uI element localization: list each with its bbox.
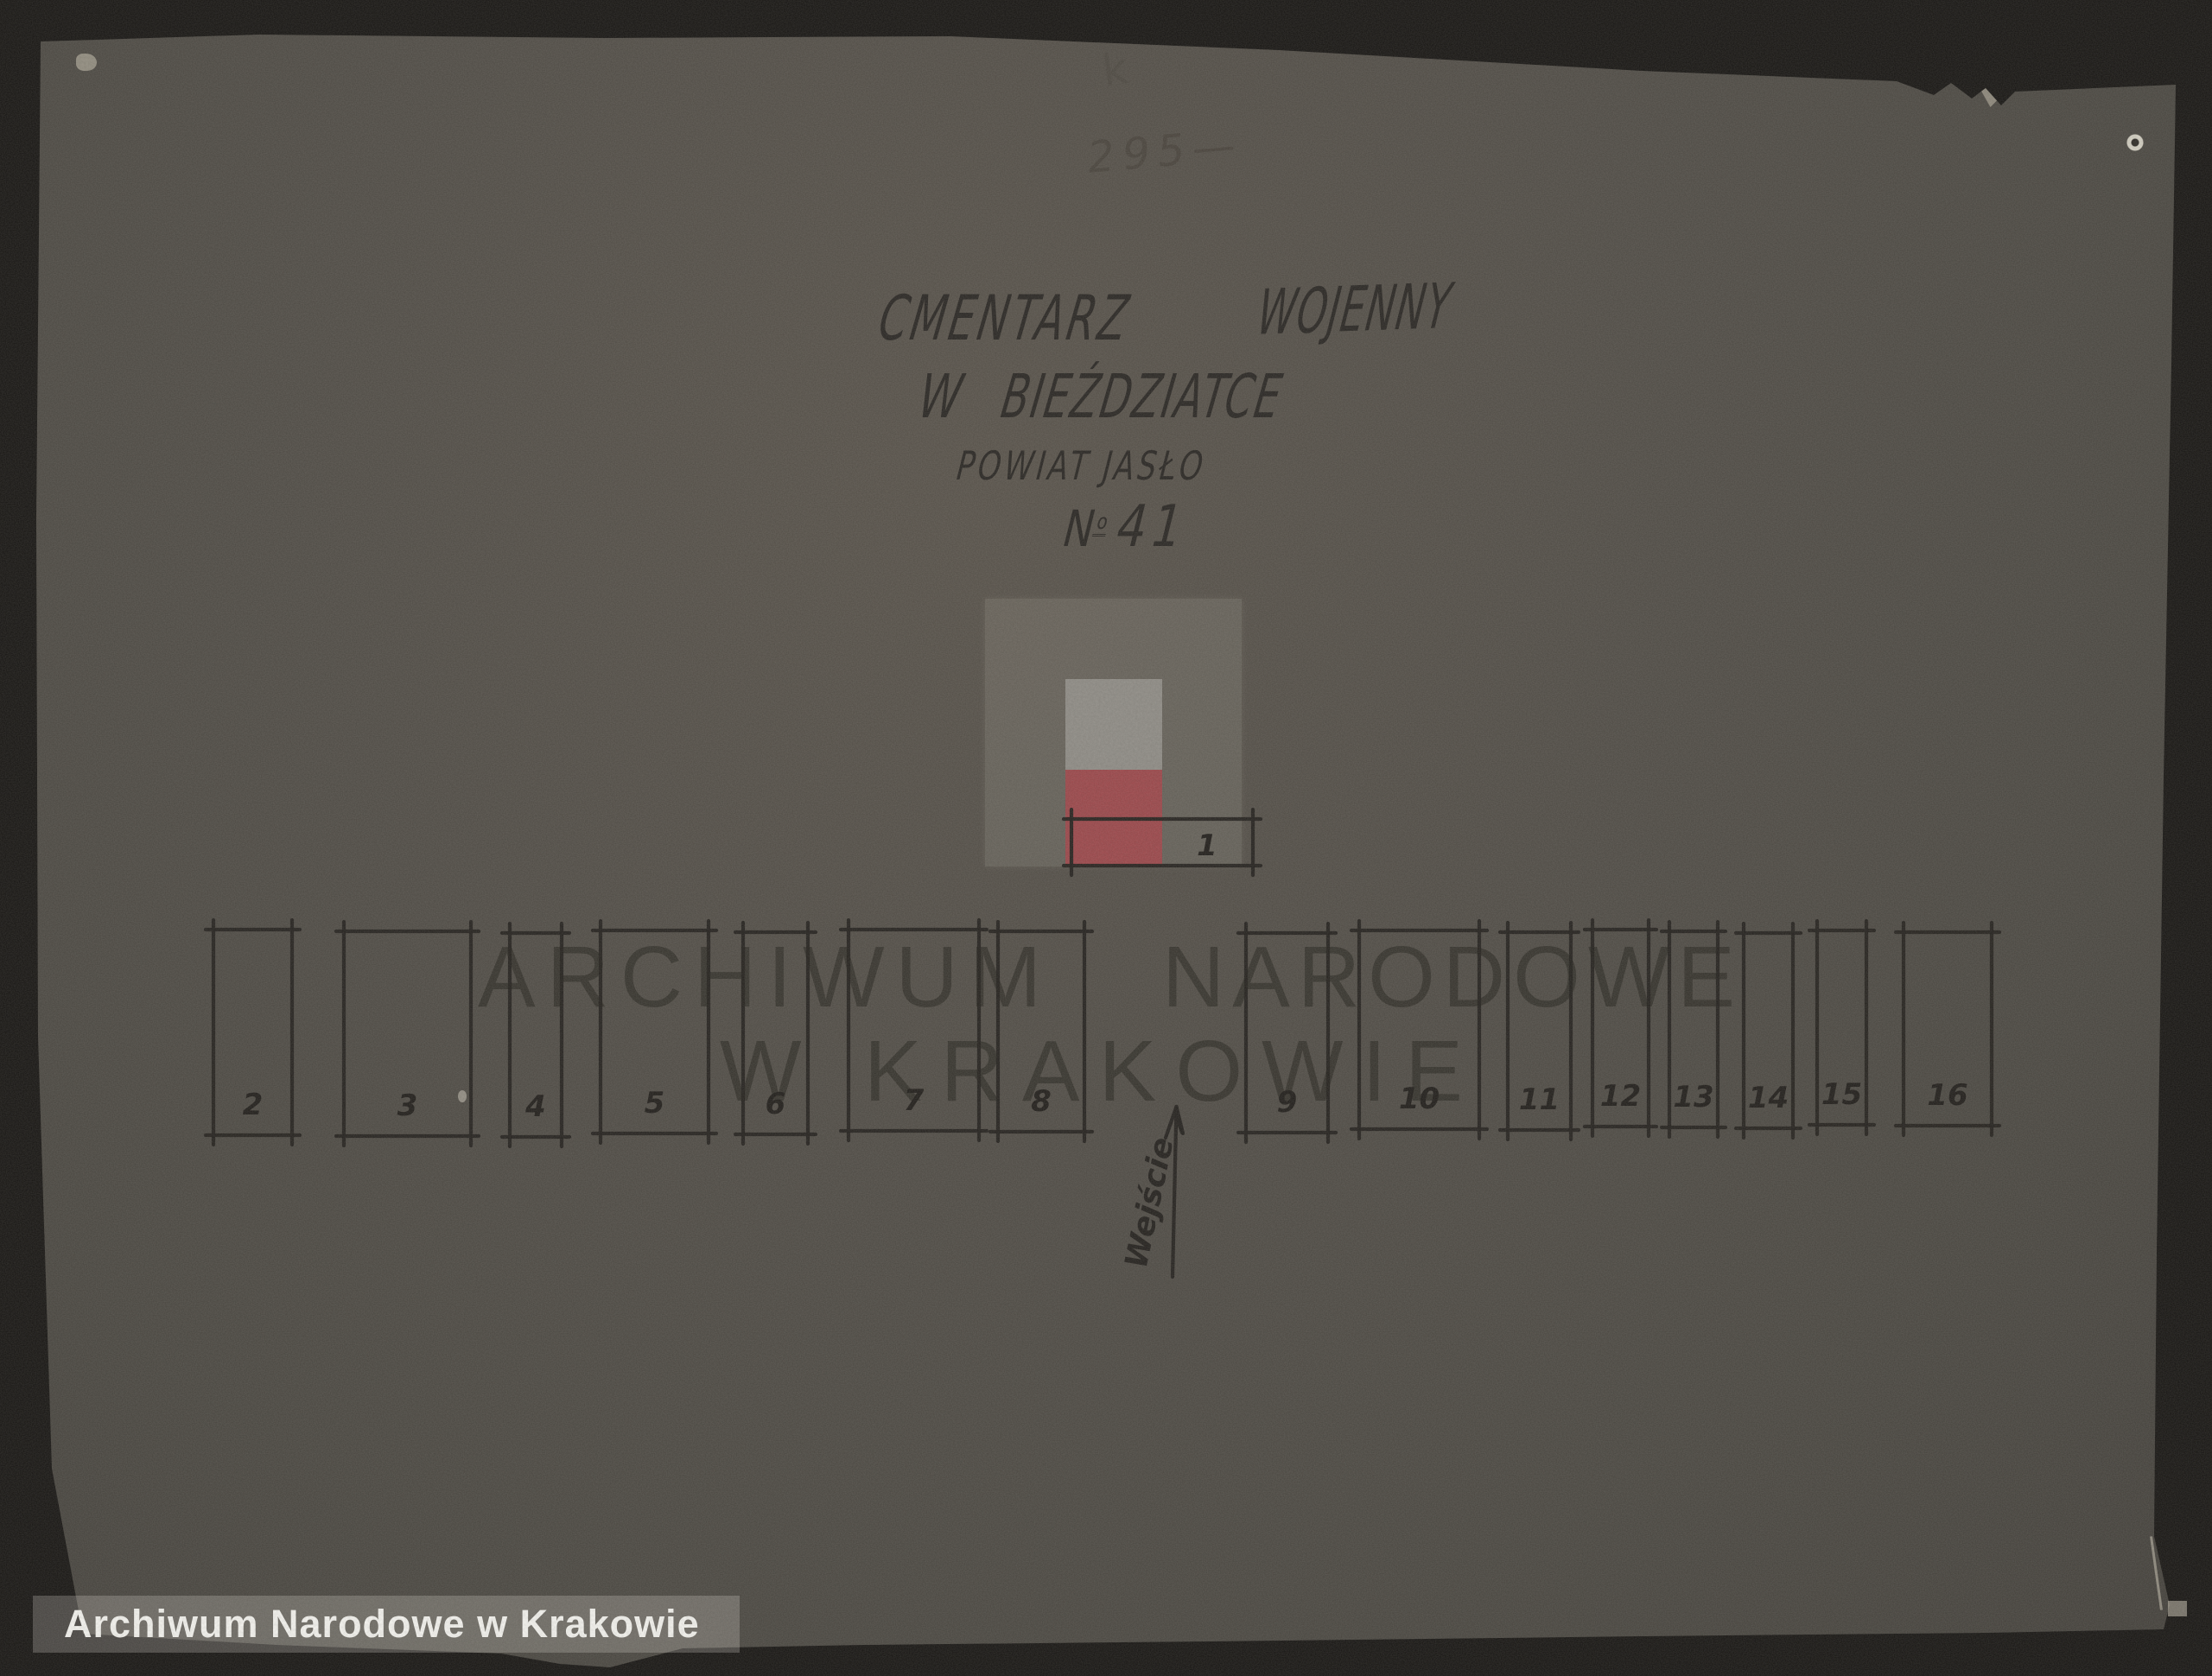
- archive-caption-bar: Archiwum Narodowe w Krakowie: [33, 1596, 740, 1653]
- plot-11: 11: [1500, 923, 1579, 1140]
- plot-number-16: 16: [1927, 1078, 1967, 1113]
- plot-number-8: 8: [1031, 1084, 1052, 1119]
- torn-corner-tab-icon: [2168, 1601, 2187, 1616]
- plot-number-15: 15: [1821, 1077, 1862, 1112]
- plot-4: 4: [502, 924, 569, 1146]
- plot-number-10: 10: [1399, 1082, 1440, 1116]
- plot-number-1: 1: [1197, 828, 1217, 863]
- plot-number-3: 3: [397, 1089, 418, 1123]
- plot-number-2: 2: [243, 1088, 264, 1122]
- plot-14: 14: [1736, 924, 1801, 1138]
- plot-8: 8: [990, 922, 1092, 1141]
- plot-number-14: 14: [1748, 1081, 1789, 1115]
- plot-number-13: 13: [1673, 1080, 1713, 1114]
- plot-1: 1: [1064, 809, 1261, 875]
- plot-2: 2: [206, 920, 300, 1145]
- plot-6: 6: [735, 923, 816, 1144]
- plot-15: 15: [1809, 921, 1874, 1134]
- plot-9: 9: [1238, 924, 1336, 1142]
- scanned-archive-page: ARCHIWUM NARODOWE W KRAKOWIE CMENTARZ WO…: [0, 0, 2212, 1676]
- plot-13: 13: [1662, 922, 1726, 1137]
- plot-number-9: 9: [1277, 1085, 1298, 1120]
- plot-number-11: 11: [1519, 1082, 1560, 1117]
- plot-5: 5: [593, 921, 716, 1143]
- plot-number-5: 5: [645, 1086, 665, 1121]
- plot-3: 3: [336, 922, 479, 1146]
- plan-drawing: 23456789101112131415161 Wejście: [0, 0, 2212, 1676]
- plot-7: 7: [841, 920, 987, 1140]
- plot-number-4: 4: [524, 1089, 546, 1124]
- paper-speck-icon: [458, 1090, 467, 1102]
- cemetery-plan-sheet: ARCHIWUM NARODOWE W KRAKOWIE CMENTARZ WO…: [0, 0, 2212, 1676]
- paper-speck-icon: [76, 54, 97, 71]
- paper-hole-icon: [2126, 134, 2144, 151]
- plot-number-6: 6: [766, 1087, 786, 1121]
- plot-12: 12: [1585, 920, 1656, 1136]
- plot-number-7: 7: [904, 1083, 925, 1118]
- plot-number-12: 12: [1600, 1079, 1641, 1114]
- plot-10: 10: [1351, 921, 1487, 1139]
- archive-caption-text: Archiwum Narodowe w Krakowie: [64, 1602, 700, 1647]
- plot-16: 16: [1896, 923, 1999, 1135]
